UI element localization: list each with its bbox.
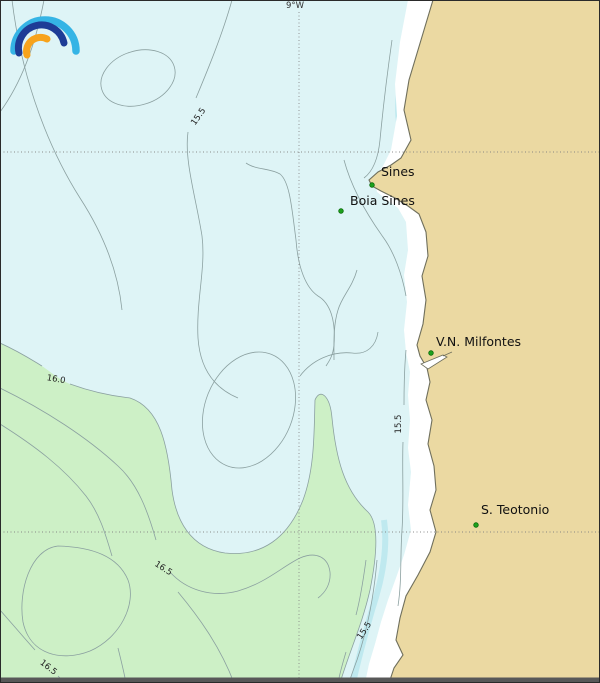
marker-s-teotonio xyxy=(474,523,479,528)
marker-sines xyxy=(370,183,375,188)
map-canvas: 9°W Sines Boia Sines V.N. Milfontes S. T… xyxy=(0,0,600,683)
marker-vn-milfontes xyxy=(429,351,434,356)
contour-label-15-5-b: 15.5 xyxy=(395,415,404,434)
place-label-vn-milfontes: V.N. Milfontes xyxy=(436,336,521,349)
marker-boia-sines xyxy=(339,209,344,214)
place-label-s-teotonio: S. Teotonio xyxy=(481,504,549,517)
longitude-label: 9°W xyxy=(286,2,304,11)
place-label-boia-sines: Boia Sines xyxy=(350,195,415,208)
place-label-sines: Sines xyxy=(381,166,415,179)
